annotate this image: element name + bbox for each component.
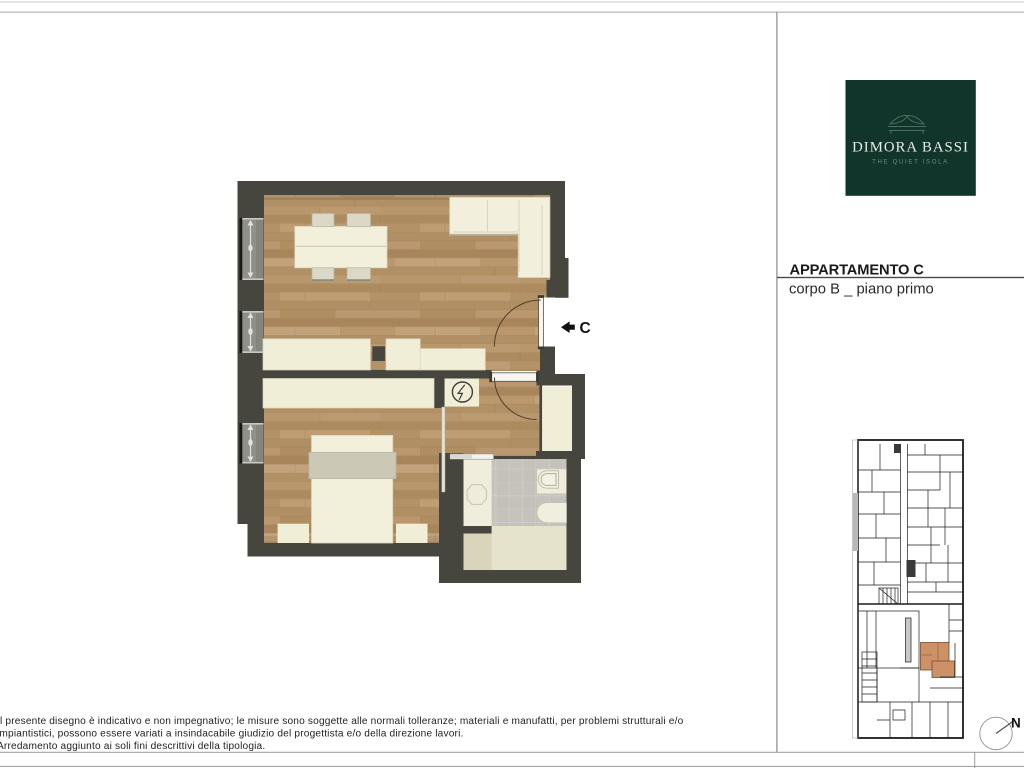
svg-text:Arredamento aggiunto ai soli f: Arredamento aggiunto ai soli fini descri… <box>0 741 265 752</box>
svg-text:Il presente disegno è indicati: Il presente disegno è indicativo e non i… <box>0 716 684 727</box>
svg-text:DIMORA BASSI: DIMORA BASSI <box>852 139 969 155</box>
svg-text:impiantistici, possono essere: impiantistici, possono essere variati a … <box>0 729 464 740</box>
svg-text:corpo B _ piano primo: corpo B _ piano primo <box>789 281 934 297</box>
svg-text:THE QUIET ISOLA: THE QUIET ISOLA <box>872 159 949 166</box>
svg-text:APPARTAMENTO C: APPARTAMENTO C <box>790 263 925 279</box>
svg-text:N: N <box>1011 716 1021 731</box>
svg-text:C: C <box>580 320 591 337</box>
